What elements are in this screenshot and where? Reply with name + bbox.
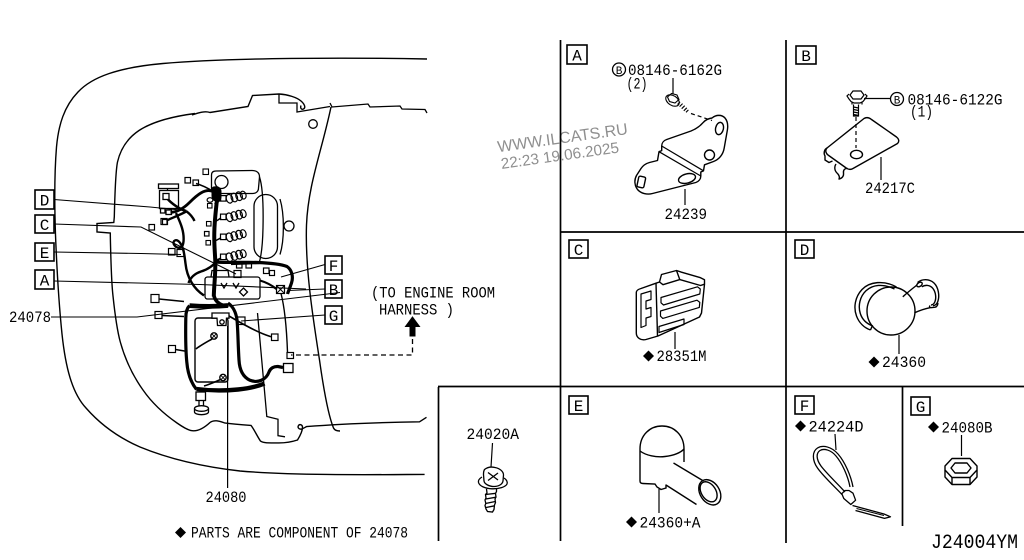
svg-text:J24004YM: J24004YM <box>931 532 1018 555</box>
svg-text:D: D <box>800 242 810 260</box>
svg-text:24080B: 24080B <box>942 420 993 438</box>
svg-text:(1): (1) <box>910 104 933 122</box>
svg-text:B: B <box>616 66 623 78</box>
svg-text:G: G <box>916 399 926 417</box>
svg-text:A: A <box>572 48 582 66</box>
svg-text:C: C <box>40 217 50 235</box>
svg-text:B: B <box>329 282 339 300</box>
svg-text:(2): (2) <box>627 76 648 94</box>
svg-text:D: D <box>40 193 50 211</box>
svg-text:HARNESS ): HARNESS ) <box>379 302 454 320</box>
svg-text:C: C <box>574 242 584 260</box>
svg-text:24360: 24360 <box>882 354 926 372</box>
svg-text:E: E <box>40 245 50 263</box>
svg-text:B: B <box>894 96 901 108</box>
svg-text:24224D: 24224D <box>809 419 864 437</box>
svg-text:24078: 24078 <box>9 309 51 327</box>
svg-text:B: B <box>801 48 811 66</box>
svg-text:F: F <box>329 258 339 276</box>
svg-text:E: E <box>574 398 584 416</box>
svg-text:24020A: 24020A <box>467 426 520 444</box>
svg-text:G: G <box>329 308 339 326</box>
svg-text:24360+A: 24360+A <box>640 515 701 533</box>
svg-text:28351M: 28351M <box>657 348 707 366</box>
svg-text:(TO ENGINE ROOM: (TO ENGINE ROOM <box>371 285 495 303</box>
svg-text:24217C: 24217C <box>865 180 915 198</box>
svg-text:PARTS ARE COMPONENT OF 24078: PARTS ARE COMPONENT OF 24078 <box>191 525 408 543</box>
svg-text:24080: 24080 <box>206 489 247 507</box>
svg-text:24239: 24239 <box>665 206 708 224</box>
svg-text:F: F <box>800 398 810 416</box>
svg-text:A: A <box>40 273 50 291</box>
